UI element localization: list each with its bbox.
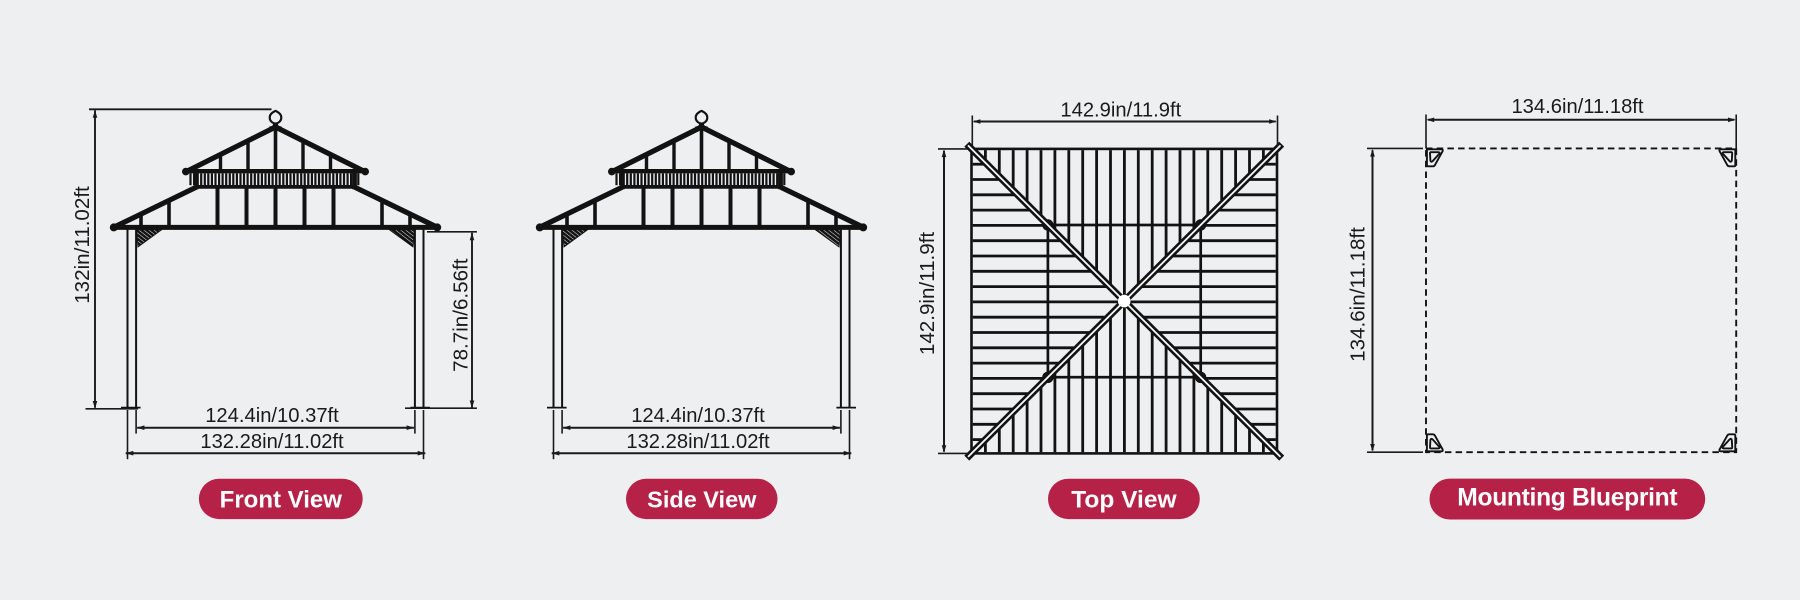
svg-text:142.9in/11.9ft: 142.9in/11.9ft	[916, 232, 939, 356]
svg-text:124.4in/10.37ft: 124.4in/10.37ft	[631, 405, 765, 427]
svg-text:134.6in/11.18ft: 134.6in/11.18ft	[1511, 96, 1643, 118]
svg-text:78.7in/6.56ft: 78.7in/6.56ft	[450, 258, 473, 372]
svg-text:132.28in/11.02ft: 132.28in/11.02ft	[200, 431, 344, 453]
svg-text:134.6in/11.18ft: 134.6in/11.18ft	[1347, 227, 1370, 362]
svg-text:Side View: Side View	[647, 487, 757, 513]
svg-text:Front View: Front View	[220, 487, 343, 514]
svg-text:124.4in/10.37ft: 124.4in/10.37ft	[205, 405, 339, 427]
svg-text:Top View: Top View	[1071, 487, 1177, 514]
svg-text:132in/11.02ft: 132in/11.02ft	[71, 186, 94, 304]
svg-text:132.28in/11.02ft: 132.28in/11.02ft	[626, 431, 770, 453]
svg-text:Mounting Blueprint: Mounting Blueprint	[1457, 485, 1677, 512]
svg-text:142.9in/11.9ft: 142.9in/11.9ft	[1060, 99, 1181, 121]
